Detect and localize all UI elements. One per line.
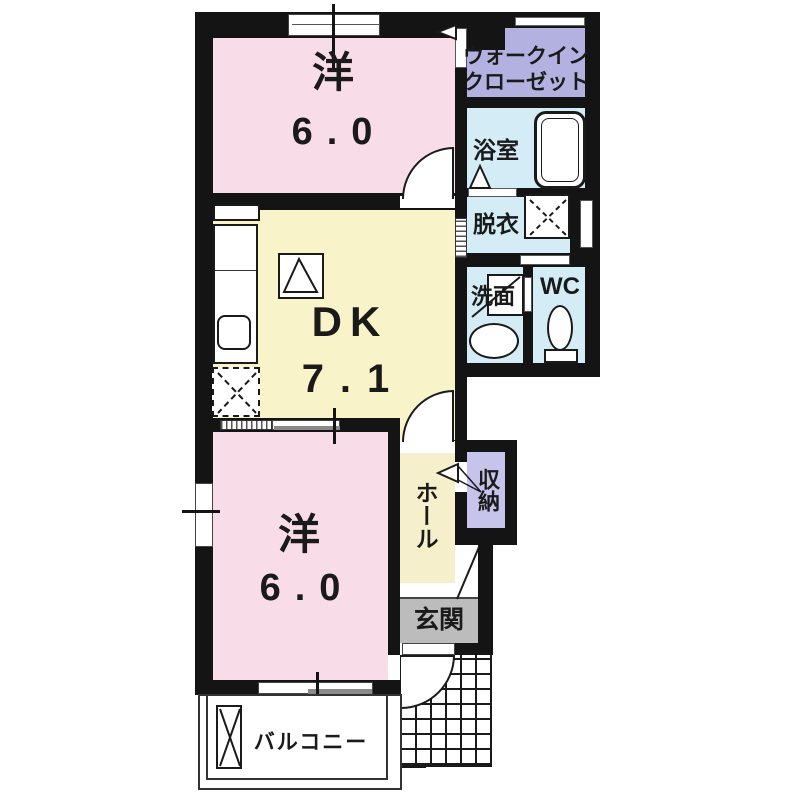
refrigerator-x (214, 369, 262, 419)
kitchen-upper-cabinet (213, 204, 260, 221)
toilet-base (544, 349, 578, 363)
label-wic-line2: クローゼット (463, 68, 589, 94)
stove-triangle (280, 255, 321, 296)
bathtub-icon (534, 111, 586, 189)
kitchen-counter-divider (215, 270, 256, 271)
washbasin-icon (469, 323, 519, 359)
dressing-x (526, 196, 572, 241)
label-entrance: 玄関 (402, 602, 476, 634)
window-dressing-slot (580, 200, 593, 248)
window-wic-top (515, 17, 585, 26)
label-hall: ホール (406, 458, 444, 573)
label-wc: WC (534, 272, 586, 302)
door-dressing-washroom (520, 255, 570, 265)
entrance-step-line (454, 544, 482, 602)
toilet-bowl-icon (547, 305, 573, 351)
bathtub-inner (541, 118, 579, 182)
wall-wic-bath (467, 97, 600, 108)
label-storage: 収納 (469, 456, 505, 524)
label-western-top-area: 6.0 (252, 108, 412, 156)
label-western-bottom-area: 6.0 (220, 564, 380, 612)
wall-hall-left (388, 418, 400, 655)
label-washroom: 洗面 (466, 282, 520, 308)
window-top-sash (292, 24, 380, 25)
washing-machine-space-icon (216, 705, 242, 769)
slide-door-dk-western-rail (274, 426, 340, 430)
stove-icon (278, 253, 324, 299)
door-dk-dressing-accordion (455, 218, 467, 258)
label-dk-area: 7.1 (283, 356, 408, 402)
door-washroom-wc-slot (524, 277, 532, 312)
kitchen-sink-icon (217, 315, 251, 350)
window-left-tick (182, 510, 220, 513)
label-walk-in-closet: ウォークイン クローゼット (463, 42, 589, 94)
wall-entrance-bottom (455, 643, 490, 655)
window-left (195, 483, 213, 547)
door-dk-hall-threshold (400, 441, 455, 453)
label-wic-line1: ウォークイン (463, 42, 589, 68)
wall-left (195, 12, 213, 695)
bathroom-door-marker (467, 163, 493, 191)
wall-storage-left-b (455, 492, 467, 528)
label-bathroom: 浴室 (468, 134, 524, 162)
refrigerator-space-icon (212, 367, 260, 417)
door-entrance-threshold (402, 643, 455, 655)
wall-storage-bottom (455, 528, 517, 545)
label-western-bottom: 洋 (249, 506, 349, 556)
wall-wet-block-bottom (455, 363, 600, 377)
wic-door-marker (435, 22, 459, 42)
slide-door-dk-western-hatch (220, 420, 272, 430)
label-western-top: 洋 (283, 44, 383, 94)
slide-door-dk-tick (333, 408, 336, 444)
dressing-machine-space-icon (524, 194, 570, 239)
label-dressing: 脱衣 (468, 208, 524, 236)
label-balcony: バルコニー (240, 728, 382, 754)
label-dk: DK (296, 298, 396, 346)
floor-plan: 洋 6.0 ウォークイン クローゼット 浴室 脱衣 洗面 WC DK 7.1 洋… (0, 0, 800, 800)
